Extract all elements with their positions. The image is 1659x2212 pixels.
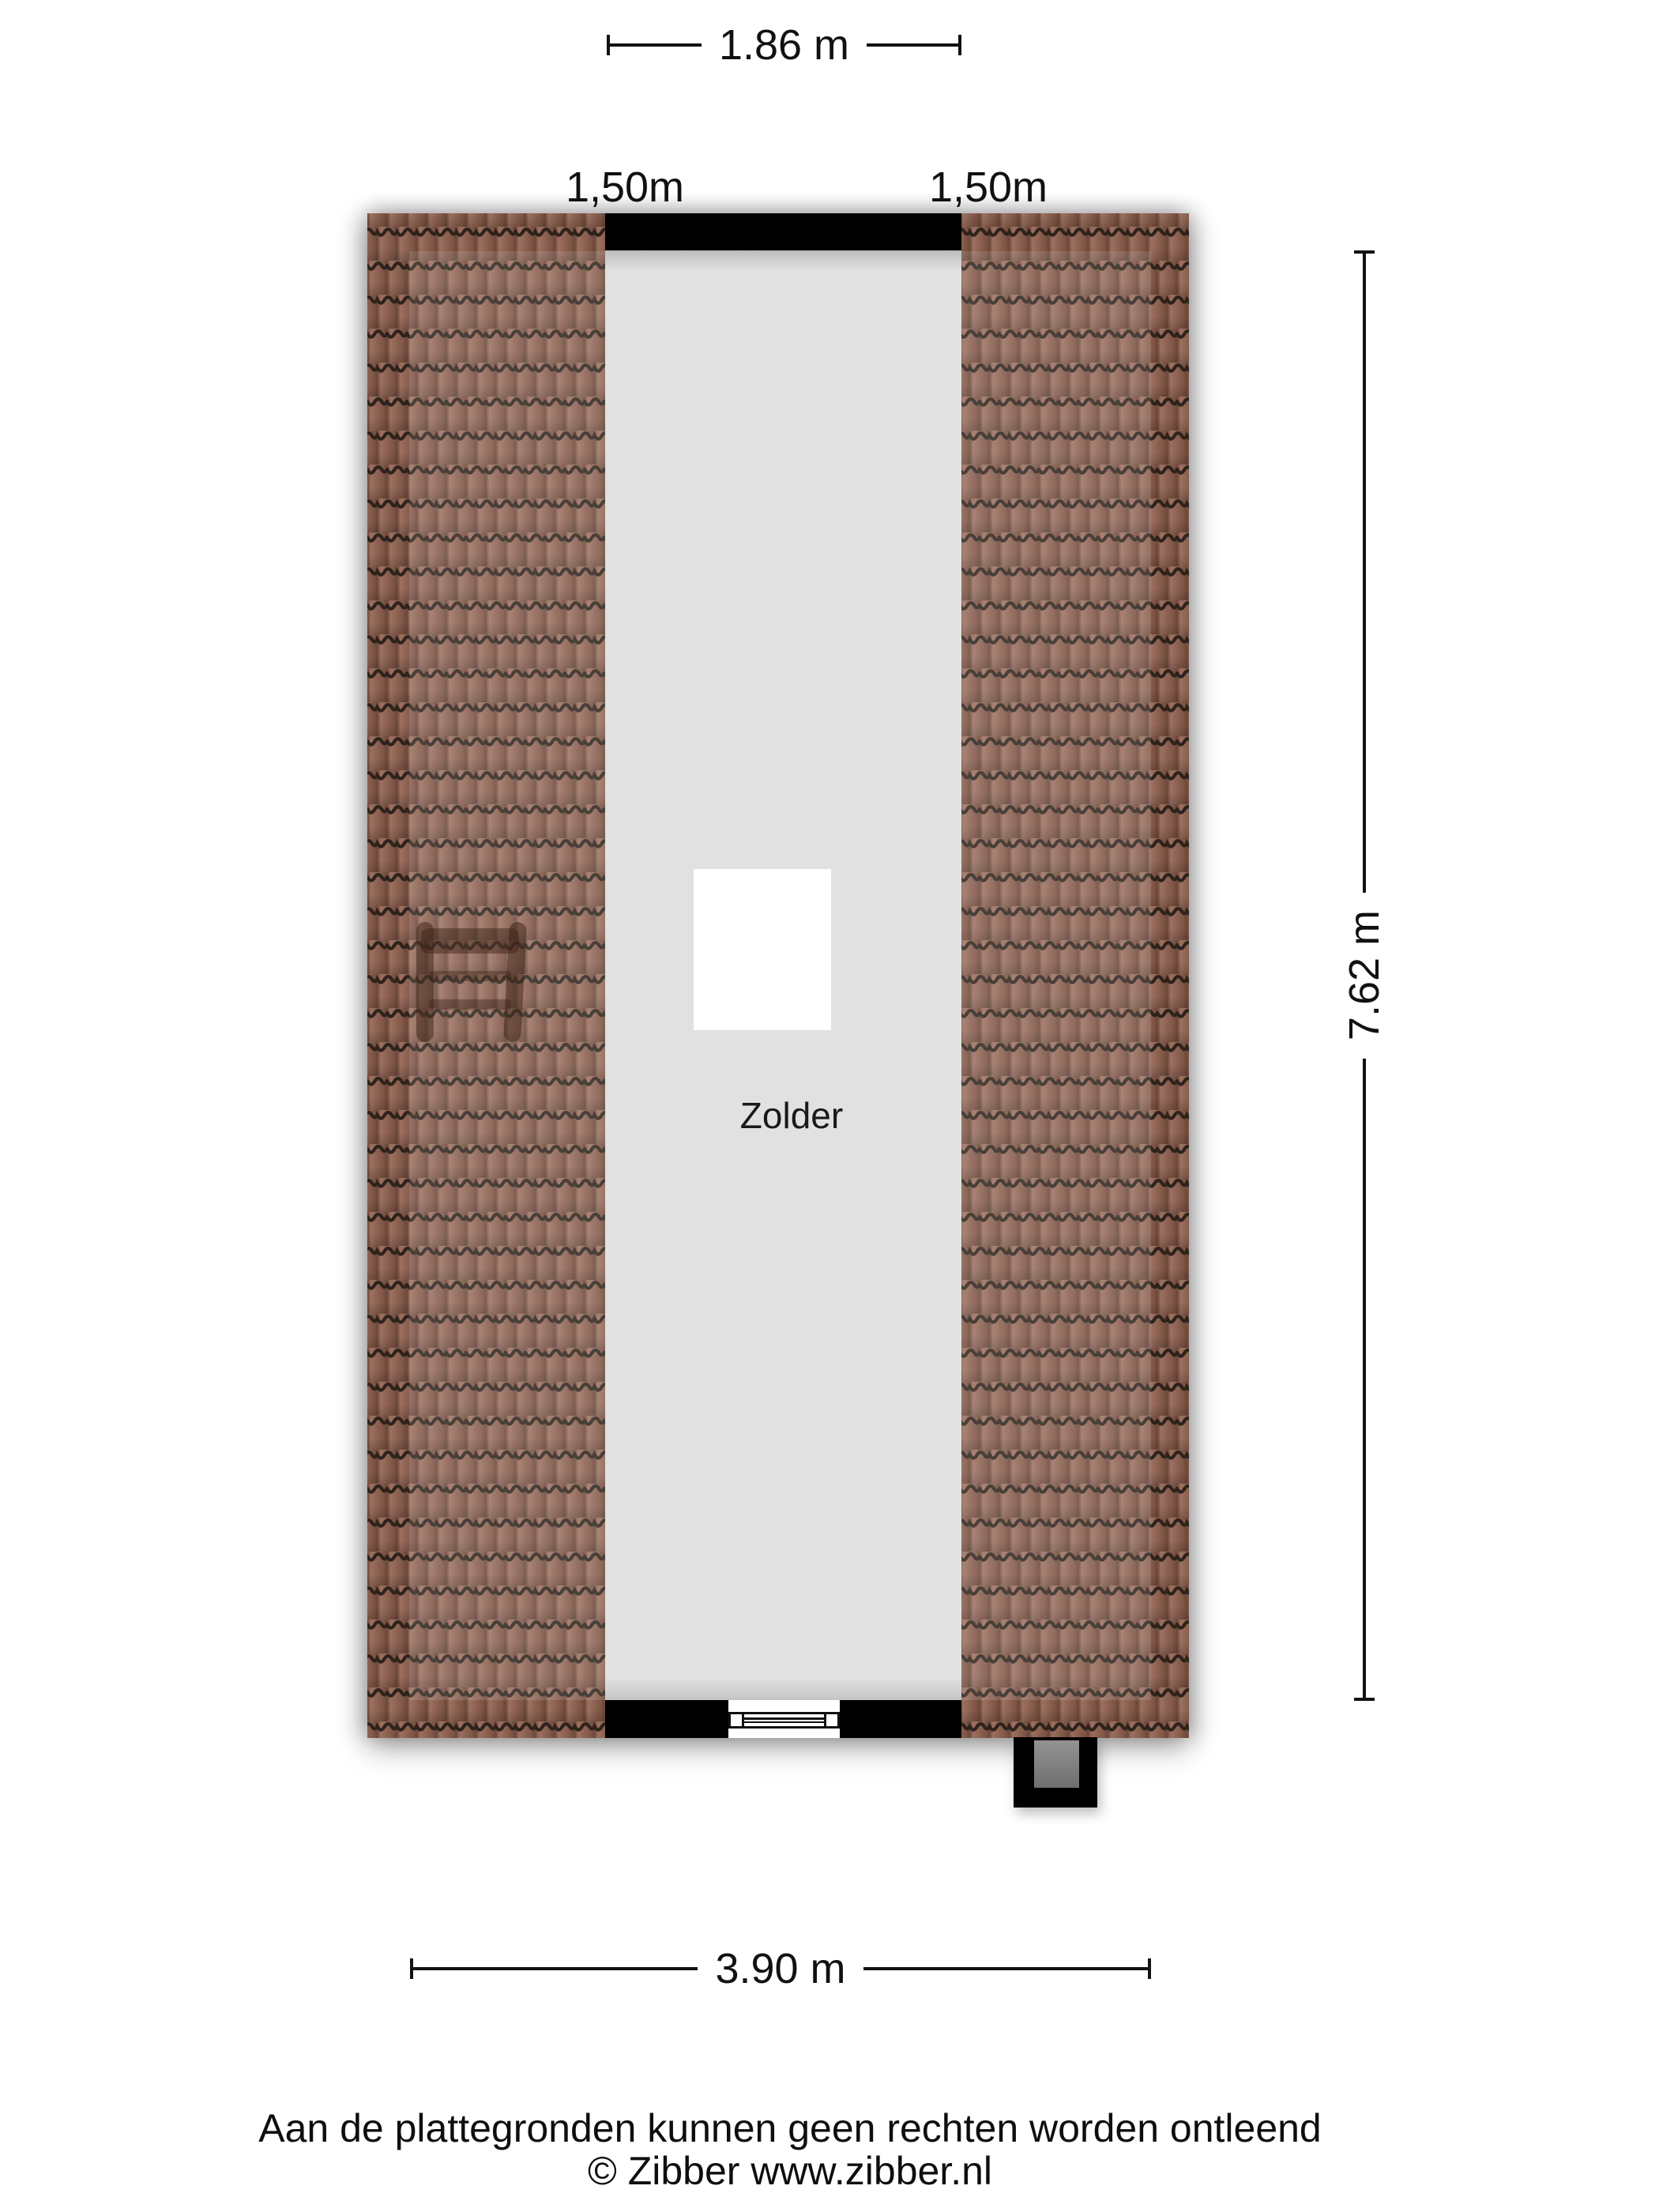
window-glass-line [744, 1721, 824, 1724]
footer-disclaimer: Aan de plattegronden kunnen geen rechten… [158, 2106, 1422, 2150]
dimension-top: 1.86 m [607, 27, 961, 63]
dimension-tick [958, 35, 961, 55]
footer-copyright: © Zibber www.zibber.nl [158, 2149, 1422, 2193]
dimension-line [1363, 1059, 1366, 1698]
window-frame-divider [824, 1714, 826, 1726]
top-wall [605, 213, 961, 250]
dimension-bottom-label: 3.90 m [698, 1944, 863, 1993]
dimension-bottom: 3.90 m [410, 1951, 1151, 1987]
dimension-line [610, 43, 702, 47]
floor-top-shadow [605, 250, 961, 271]
dimension-top-label: 1.86 m [702, 21, 867, 70]
floor-plan-page: Zolder 1.86 m 1,50m 1,50m 7.62 m 3.90 m … [0, 0, 1659, 2212]
window-glass-line [744, 1717, 824, 1720]
dimension-line [413, 1967, 698, 1970]
dimension-line [863, 1967, 1148, 1970]
roof-ladder-top-bar [421, 928, 519, 954]
dimension-right: 7.62 m [1347, 250, 1382, 1701]
roof-width-label-left: 1,50m [530, 163, 720, 212]
roof-width-label-right: 1,50m [893, 163, 1083, 212]
dimension-right-label: 7.62 m [1340, 893, 1389, 1058]
roof-ladder-slat [429, 971, 511, 981]
roof-ladder [416, 922, 524, 1045]
dimension-line [1363, 254, 1366, 893]
floor-bottom-shadow [605, 1678, 961, 1700]
room-label: Zolder [634, 1094, 950, 1137]
roof-ladder-slat [429, 999, 511, 1010]
dimension-tick [1148, 1958, 1151, 1979]
window-frame-divider [742, 1714, 744, 1726]
dimension-tick [1354, 1698, 1375, 1701]
skylight [694, 869, 831, 1030]
bottom-wall-left-segment [605, 1700, 728, 1738]
chimney-flue [1034, 1740, 1079, 1788]
chimney [1014, 1737, 1097, 1808]
bottom-wall-right-segment [840, 1700, 961, 1738]
dimension-line [867, 43, 958, 47]
window-symbol [728, 1712, 840, 1729]
